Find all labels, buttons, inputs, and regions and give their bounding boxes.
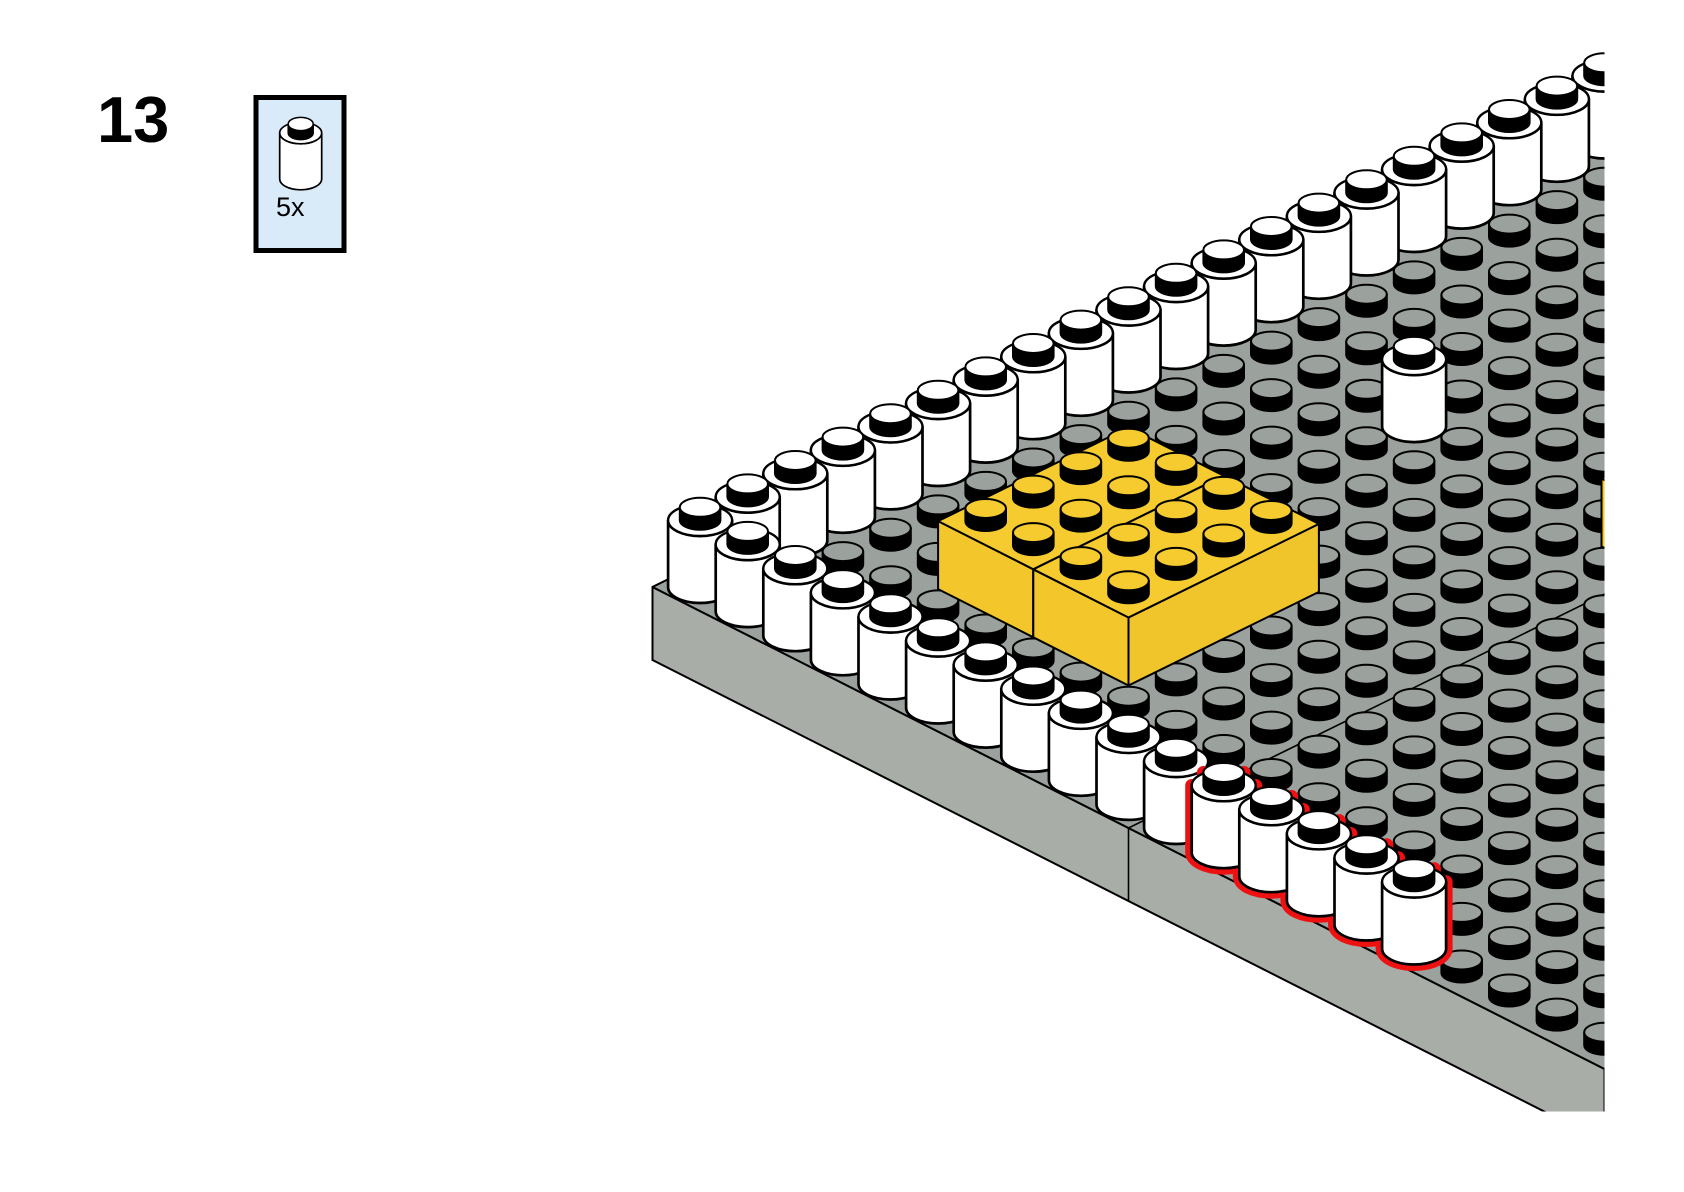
svg-text:5x: 5x — [276, 192, 305, 222]
svg-text:13: 13 — [97, 83, 169, 156]
